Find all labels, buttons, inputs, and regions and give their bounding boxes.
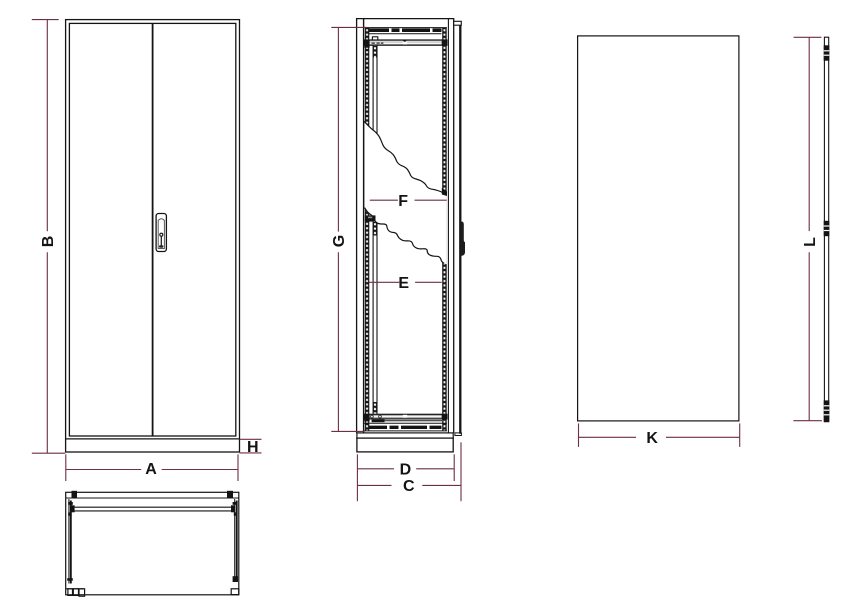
svg-text:D: D: [400, 461, 412, 478]
svg-text:G: G: [331, 235, 348, 247]
svg-text:F: F: [398, 193, 408, 210]
svg-text:A: A: [145, 461, 157, 478]
svg-text:H: H: [247, 439, 259, 456]
svg-text:B: B: [40, 236, 57, 248]
svg-text:K: K: [646, 430, 658, 447]
svg-text:E: E: [398, 275, 409, 292]
svg-text:L: L: [802, 237, 819, 247]
svg-text:C: C: [403, 478, 415, 495]
